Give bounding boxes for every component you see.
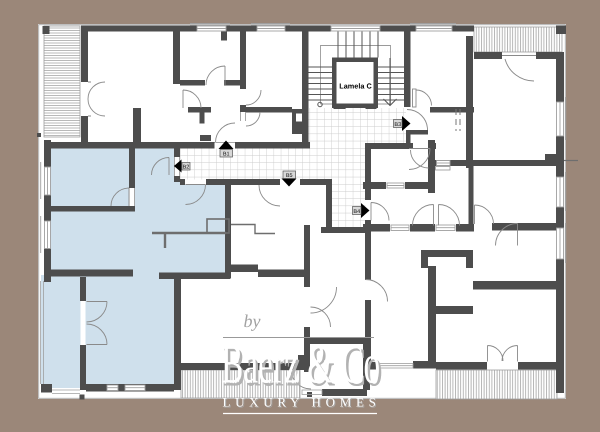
- svg-text:by: by: [244, 311, 261, 331]
- svg-text:B1: B1: [223, 152, 230, 158]
- svg-text:Lamela C: Lamela C: [339, 82, 372, 91]
- svg-text:B2: B2: [183, 165, 190, 171]
- svg-text:B4: B4: [353, 209, 360, 215]
- svg-text:B5: B5: [286, 173, 293, 179]
- svg-text:LUXURY HOMES: LUXURY HOMES: [222, 395, 380, 410]
- svg-text:Baerz & Co: Baerz & Co: [221, 334, 380, 396]
- svg-text:B3: B3: [394, 122, 401, 128]
